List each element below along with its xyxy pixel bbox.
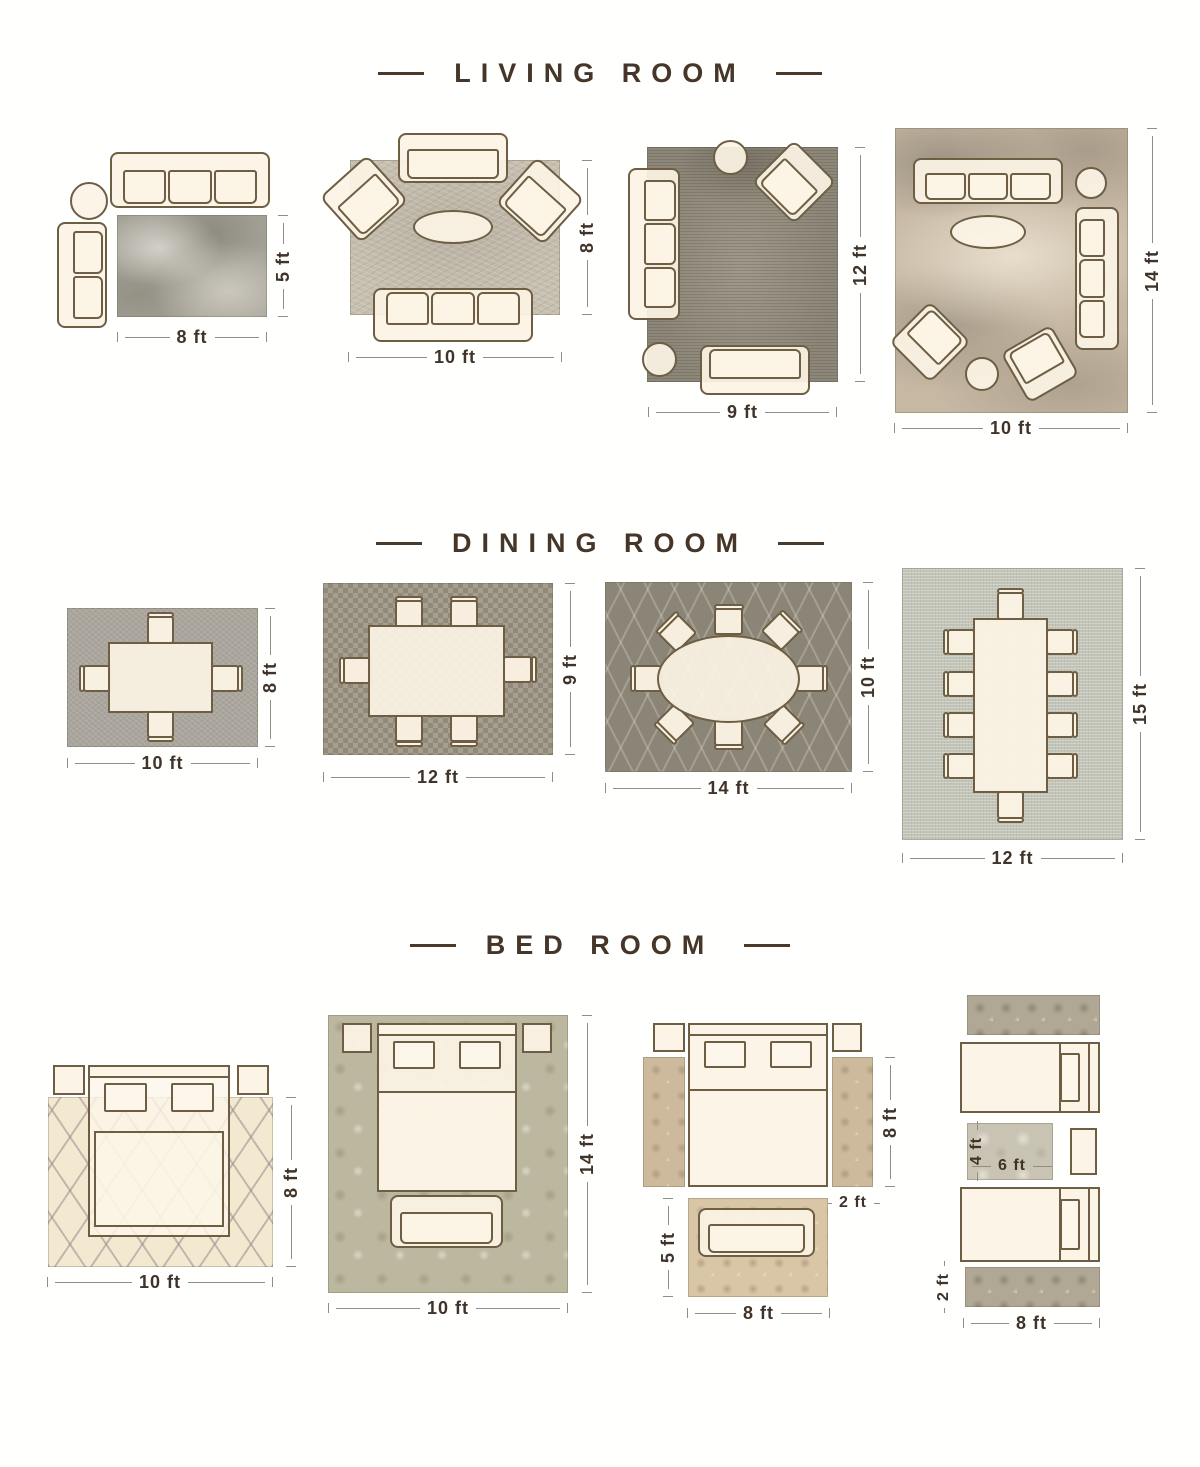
nightstand	[237, 1065, 269, 1095]
dimension-label: 8 ft	[577, 222, 598, 253]
dimension-label: 6 ft	[998, 1157, 1026, 1175]
title-dash-right	[744, 944, 790, 947]
dimension-label: 8 ft	[260, 662, 281, 693]
height-dimension: 12 ft	[849, 147, 871, 382]
sofa	[373, 288, 533, 342]
height-dimension: 8 ft	[280, 1097, 302, 1267]
runner-rug	[643, 1057, 685, 1187]
height-dimension: 8 ft	[576, 160, 598, 315]
sofa-cushions	[73, 231, 103, 319]
nightstand	[653, 1023, 685, 1052]
rug	[117, 215, 267, 317]
runner-length-dimension: 8 ft	[963, 1312, 1100, 1334]
oval-coffee-table	[413, 210, 493, 244]
pillow	[459, 1041, 501, 1069]
width-dimension: 12 ft	[323, 766, 553, 788]
dimension-label: 8 ft	[1016, 1313, 1047, 1334]
headboard	[377, 1023, 517, 1036]
section-living-room-title: LIVING ROOM	[0, 58, 1200, 89]
dining-chair	[1046, 671, 1074, 697]
dimension-label: 12 ft	[850, 244, 871, 286]
loveseat	[700, 345, 810, 395]
sofa-cushions	[386, 292, 520, 325]
section-title-text: DINING ROOM	[452, 528, 748, 559]
dining-chair	[83, 665, 111, 692]
bench	[390, 1195, 503, 1248]
sofa	[698, 1208, 815, 1257]
section-bed-room-title: BED ROOM	[0, 930, 1200, 961]
blanket	[94, 1131, 224, 1227]
sofa-cushions	[709, 349, 800, 379]
title-dash-left	[378, 72, 424, 75]
rug-size-guide: LIVING ROOM 5 ft 8 ft	[0, 0, 1200, 1467]
dining-chair	[796, 665, 824, 692]
dimension-label: 15 ft	[1130, 683, 1151, 725]
dining-chair	[395, 713, 423, 742]
sofa-cushions	[1079, 219, 1105, 339]
dimension-label: 10 ft	[858, 656, 879, 698]
dining-chair	[997, 791, 1024, 819]
runner-width-dimension: 2 ft	[933, 1261, 955, 1313]
dining-chair	[947, 671, 975, 697]
dimension-label: 2 ft	[839, 1194, 867, 1212]
title-dash-left	[376, 542, 422, 545]
round-side-table	[70, 182, 108, 220]
dimension-label: 12 ft	[417, 767, 459, 788]
dining-chair	[503, 656, 532, 683]
height-dimension: 8 ft	[259, 608, 281, 747]
sofa-cushions	[400, 1212, 494, 1244]
between-rug-width-dimension: 6 ft	[972, 1155, 1052, 1177]
nightstand	[1070, 1128, 1097, 1175]
pillow	[770, 1041, 812, 1068]
dining-chair	[947, 712, 975, 738]
nightstand	[522, 1023, 552, 1053]
blanket	[688, 1089, 828, 1187]
dimension-label: 10 ft	[990, 418, 1032, 439]
width-dimension: 10 ft	[328, 1297, 568, 1319]
title-dash-left	[410, 944, 456, 947]
runner-rug	[965, 1267, 1100, 1307]
section-dining-room-title: DINING ROOM	[0, 528, 1200, 559]
dimension-label: 8 ft	[743, 1303, 774, 1324]
headboard	[88, 1065, 230, 1078]
height-dimension: 15 ft	[1129, 568, 1151, 840]
round-side-table	[1075, 167, 1107, 199]
loveseat	[398, 133, 508, 183]
headboard	[1088, 1042, 1100, 1113]
dimension-label: 9 ft	[727, 402, 758, 423]
dimension-label: 5 ft	[273, 251, 294, 282]
sofa	[913, 158, 1063, 204]
height-dimension: 10 ft	[857, 582, 879, 772]
width-dimension: 14 ft	[605, 777, 852, 799]
sofa	[628, 168, 680, 320]
twin-bed	[960, 1042, 1100, 1113]
width-dimension: 10 ft	[47, 1271, 273, 1293]
nightstand	[53, 1065, 85, 1095]
dining-chair	[714, 608, 743, 635]
dimension-label: 14 ft	[577, 1133, 598, 1175]
dining-chair	[1046, 712, 1074, 738]
nightstand	[342, 1023, 372, 1053]
headboard	[1088, 1187, 1100, 1262]
round-side-table	[642, 342, 677, 377]
round-side-table	[713, 140, 748, 175]
width-dimension: 12 ft	[902, 847, 1123, 869]
dimension-label: 8 ft	[177, 327, 208, 348]
dimension-label: 9 ft	[560, 654, 581, 685]
width-dimension: 9 ft	[648, 401, 837, 423]
dimension-label: 5 ft	[658, 1232, 679, 1263]
foot-rug-width-dimension: 8 ft	[687, 1302, 830, 1324]
title-dash-right	[778, 542, 824, 545]
dimension-label: 2 ft	[935, 1273, 953, 1301]
section-title-text: BED ROOM	[486, 930, 715, 961]
dimension-label: 8 ft	[880, 1107, 901, 1138]
width-dimension: 10 ft	[894, 417, 1128, 439]
height-dimension: 14 ft	[576, 1015, 598, 1293]
pillow	[1060, 1199, 1080, 1250]
dimension-label: 10 ft	[139, 1272, 181, 1293]
dining-chair	[1046, 629, 1074, 655]
bed	[377, 1023, 517, 1192]
title-dash-right	[776, 72, 822, 75]
bed	[688, 1023, 828, 1187]
sofa-cushions	[708, 1224, 805, 1254]
sofa-cushions	[925, 173, 1051, 201]
dining-chair	[147, 616, 174, 644]
width-dimension: 10 ft	[348, 346, 562, 368]
dining-chair	[947, 629, 975, 655]
pillow	[1060, 1053, 1080, 1101]
pillow	[704, 1041, 746, 1068]
sofa	[1075, 207, 1119, 350]
height-dimension: 14 ft	[1141, 128, 1163, 413]
dimension-label: 8 ft	[281, 1167, 302, 1198]
runner-rug	[967, 995, 1100, 1035]
dining-table	[973, 618, 1048, 793]
dining-chair	[714, 719, 743, 746]
dining-chair	[997, 592, 1024, 620]
nightstand	[832, 1023, 862, 1052]
sofa	[110, 152, 270, 208]
round-side-table	[965, 357, 999, 391]
dining-table	[108, 642, 213, 713]
height-dimension: 9 ft	[559, 583, 581, 755]
dining-chair	[1046, 753, 1074, 779]
dining-table	[657, 635, 800, 723]
dimension-label: 12 ft	[992, 848, 1034, 869]
runner-rug	[832, 1057, 873, 1187]
dimension-label: 10 ft	[142, 753, 184, 774]
pillow	[171, 1083, 214, 1112]
bed	[88, 1065, 230, 1237]
dimension-label: 10 ft	[427, 1298, 469, 1319]
width-dimension: 8 ft	[117, 326, 267, 348]
sofa-cushions	[123, 170, 257, 204]
section-title-text: LIVING ROOM	[454, 58, 746, 89]
twin-bed	[960, 1187, 1100, 1262]
dimension-label: 14 ft	[1142, 250, 1163, 292]
pillow	[393, 1041, 435, 1069]
dining-chair	[147, 710, 174, 738]
foot-rug-height-dimension: 5 ft	[657, 1198, 679, 1297]
runner-width-dimension: 2 ft	[826, 1192, 880, 1214]
oval-coffee-table	[950, 215, 1026, 249]
dining-table	[368, 625, 505, 717]
sofa-cushions	[644, 180, 675, 307]
pillow	[104, 1083, 147, 1112]
loveseat	[57, 222, 107, 328]
dining-chair	[947, 753, 975, 779]
dining-chair	[450, 713, 478, 742]
headboard	[688, 1023, 828, 1036]
height-dimension: 5 ft	[272, 215, 294, 317]
dimension-label: 10 ft	[434, 347, 476, 368]
dimension-label: 14 ft	[708, 778, 750, 799]
blanket	[377, 1091, 517, 1192]
dining-chair	[211, 665, 239, 692]
sofa-cushions	[407, 149, 498, 179]
width-dimension: 10 ft	[67, 752, 258, 774]
runner-length-dimension: 8 ft	[879, 1057, 901, 1187]
